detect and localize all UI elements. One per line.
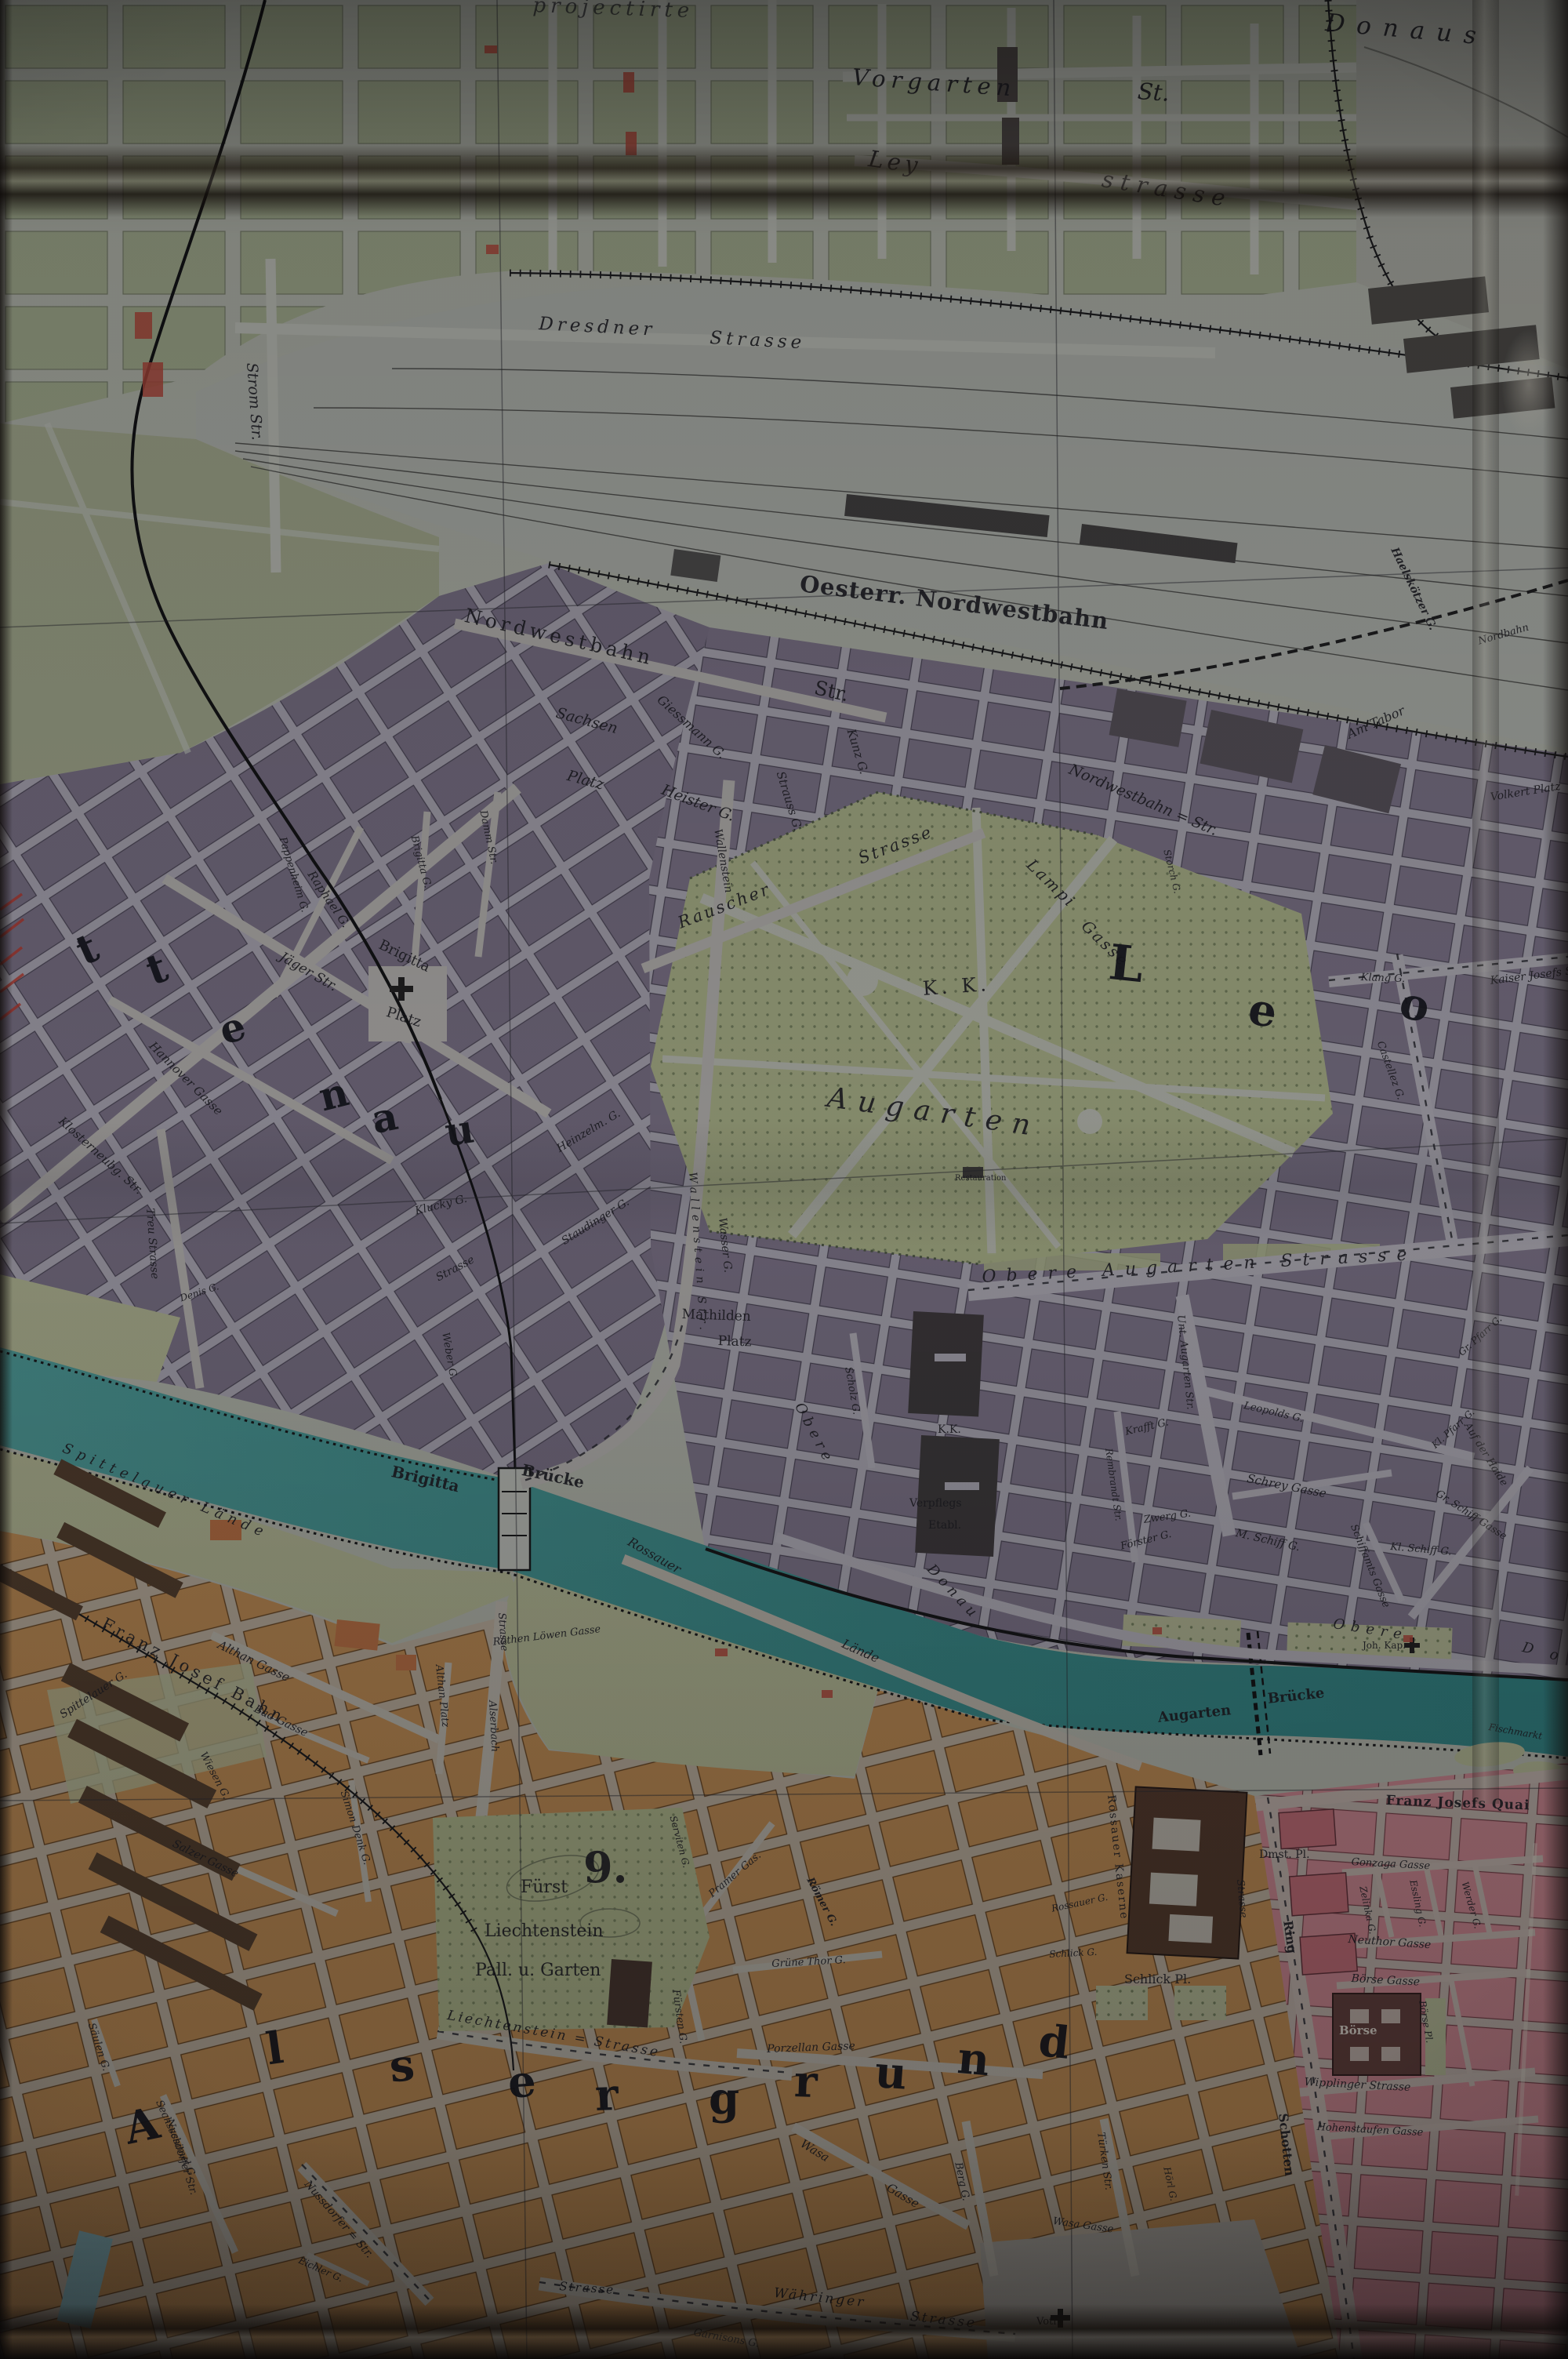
- street-label: Porzellan Gasse: [767, 2041, 855, 2055]
- building-label: Verpflegs: [909, 1498, 962, 1509]
- district-letter: s: [387, 2043, 416, 2089]
- building-label: Restauration: [955, 1175, 1006, 1183]
- street-label: Schlick G.: [1049, 1947, 1098, 1959]
- street-label: Strasse: [710, 329, 806, 352]
- building-label: Börse: [1339, 2025, 1377, 2037]
- district-letter: e: [506, 2059, 537, 2105]
- district-letter: d: [1036, 2019, 1072, 2066]
- place-label: Schlick Pl.: [1124, 1973, 1191, 1986]
- place-label: Joh. Kap.: [1363, 1641, 1406, 1650]
- street-label: Alserbach: [487, 1700, 499, 1752]
- place-label: Votiv: [1036, 2317, 1062, 2327]
- street-label: St.: [1137, 80, 1171, 105]
- place-label: Platz: [717, 1335, 751, 1349]
- district-letter: u: [442, 1109, 477, 1152]
- numeral-label: 9.: [583, 1846, 627, 1888]
- place-label: Mathilden: [681, 1308, 751, 1324]
- place-label: Pall. u. Garten: [475, 1962, 601, 1979]
- map-photo: projectirte Vorgarten St. Ley strasse Do…: [0, 0, 1568, 2359]
- street-label: Strasse: [496, 1612, 509, 1652]
- street-label: projectirte: [532, 0, 695, 21]
- district-letter: g: [709, 2077, 739, 2121]
- street-label: Strasse: [1235, 1879, 1248, 1918]
- place-label: K. K.: [922, 974, 991, 998]
- district-letter: L: [1107, 938, 1146, 990]
- street-label: Ring: [1281, 1920, 1298, 1954]
- street-label: Klang G.: [1361, 972, 1406, 984]
- rossauer-kaserne-building: [1127, 1787, 1247, 1958]
- building-label: K.K.: [938, 1424, 961, 1435]
- place-label: Fürst: [521, 1879, 568, 1896]
- building-label: Etabl.: [928, 1520, 961, 1531]
- district-letter: n: [956, 2036, 991, 2082]
- district-letter: u: [873, 2050, 909, 2096]
- place-label: Dmst. Pl.: [1259, 1849, 1310, 1860]
- place-label: Liechtenstein: [485, 1923, 604, 1940]
- district-letter: r: [793, 2059, 818, 2104]
- street-label: Strom Str.: [244, 362, 264, 441]
- base-map: [0, 0, 1568, 2359]
- district-letter: r: [594, 2073, 619, 2117]
- liechtenstein-palais: [607, 1959, 652, 2027]
